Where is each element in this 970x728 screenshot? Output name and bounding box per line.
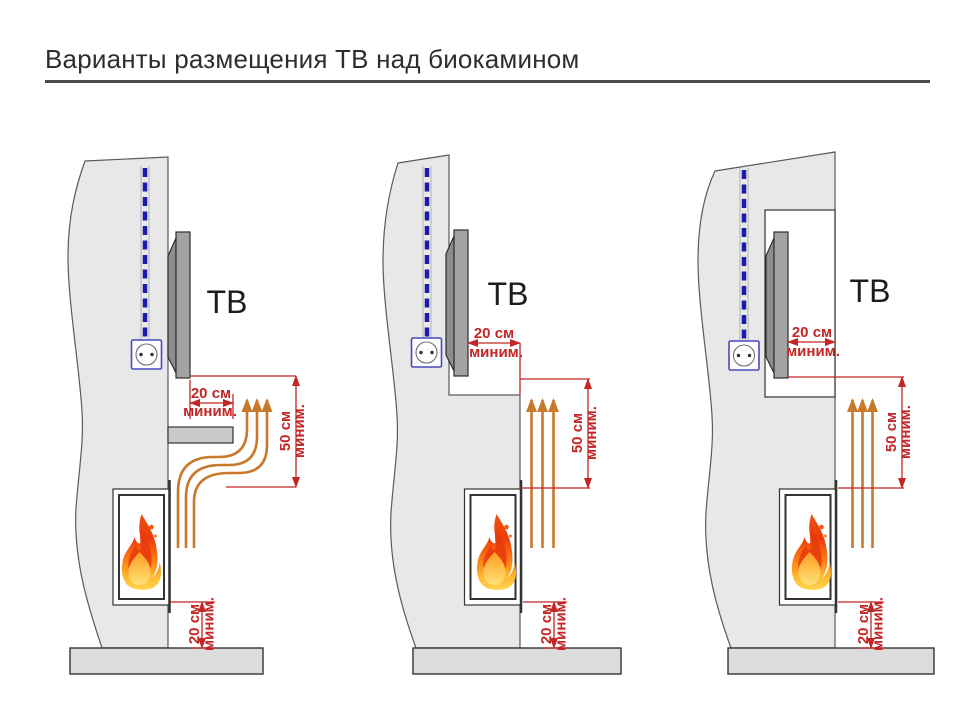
tv-side-view xyxy=(168,232,190,378)
floor-slab xyxy=(413,648,621,674)
tv-label: ТВ xyxy=(488,276,529,312)
dim-note: миним. xyxy=(786,343,840,360)
tv-label: ТВ xyxy=(850,273,891,309)
infographic-page: Варианты размещения ТВ над биокамином xyxy=(0,0,970,728)
heat-arrows xyxy=(532,400,554,548)
dim-note: миним. xyxy=(201,597,218,651)
power-outlet-icon xyxy=(729,341,759,370)
fireplace xyxy=(465,480,522,613)
dimension-tv-gap: 20 см миним. xyxy=(468,325,523,395)
dim-value: 20 см xyxy=(191,385,231,402)
dim-note: миним. xyxy=(870,597,887,651)
fireplace xyxy=(780,480,837,613)
dim-note: миним. xyxy=(469,344,523,361)
fireplace xyxy=(113,480,170,613)
mounting-shelf xyxy=(168,427,233,443)
diagram-variant-1: ТВ 20 см миним. xyxy=(68,157,308,674)
floor-slab xyxy=(728,648,934,674)
dimension-floor-clearance: 20 см миним. xyxy=(838,597,887,651)
power-outlet-icon xyxy=(412,338,442,367)
heat-arrows xyxy=(178,400,267,548)
tv-side-view xyxy=(766,232,788,378)
dim-note: миним. xyxy=(553,597,570,651)
dim-note: миним. xyxy=(291,404,308,458)
dim-note: миним. xyxy=(897,405,914,459)
heat-arrows xyxy=(853,400,873,548)
dimension-floor-clearance: 20 см миним. xyxy=(523,597,570,651)
floor-slab xyxy=(70,648,263,674)
tv-label: ТВ xyxy=(207,284,248,320)
dimension-tv-gap: 20 см миним. xyxy=(786,324,840,360)
dimension-floor-clearance: 20 см миним. xyxy=(170,597,218,651)
dim-value: 20 см xyxy=(474,325,514,342)
diagram-variant-3: ТВ 20 см миним. 50 см xyxy=(698,152,934,674)
dim-note: миним. xyxy=(583,406,600,460)
diagram-canvas: ТВ 20 см миним. xyxy=(0,0,970,728)
diagram-variant-2: ТВ 20 см миним. xyxy=(383,155,621,674)
tv-side-view xyxy=(446,230,468,376)
dim-value: 20 см xyxy=(792,324,832,341)
dim-note: миним. xyxy=(183,403,237,420)
power-outlet-icon xyxy=(132,340,162,369)
